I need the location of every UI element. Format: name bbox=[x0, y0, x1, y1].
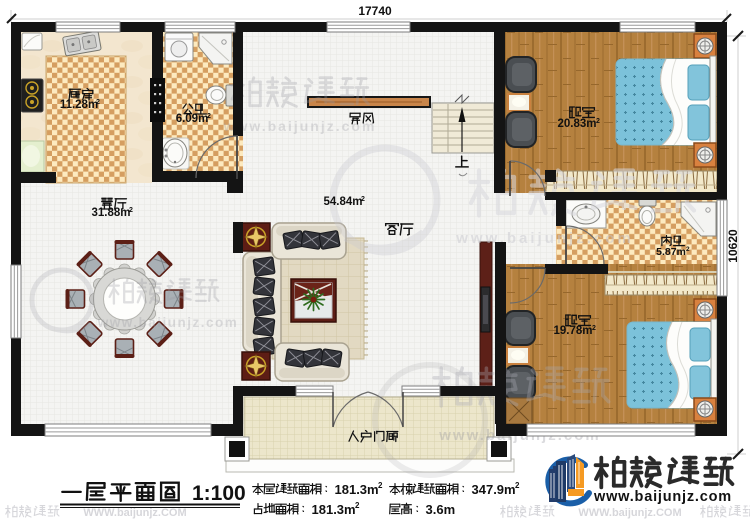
svg-text:2: 2 bbox=[207, 113, 211, 120]
svg-text:20.83m: 20.83m bbox=[557, 118, 596, 130]
svg-text:6.09m: 6.09m bbox=[176, 113, 209, 125]
svg-text:3.6m: 3.6m bbox=[426, 502, 456, 517]
svg-text:WWW.baijunjz.COM: WWW.baijunjz.COM bbox=[578, 507, 681, 519]
svg-text:www.baijunjz.com: www.baijunjz.com bbox=[593, 489, 732, 505]
svg-text:2: 2 bbox=[129, 207, 133, 214]
svg-text:2: 2 bbox=[355, 501, 360, 510]
svg-text:17740: 17740 bbox=[358, 4, 392, 18]
svg-text:2: 2 bbox=[515, 481, 520, 490]
svg-text:11.28m: 11.28m bbox=[60, 99, 98, 111]
svg-text:2: 2 bbox=[361, 196, 365, 203]
svg-text:2: 2 bbox=[96, 99, 100, 106]
svg-text:2: 2 bbox=[592, 325, 596, 332]
svg-text:2: 2 bbox=[378, 481, 383, 490]
svg-text:www.baijunjz.com: www.baijunjz.com bbox=[97, 315, 239, 330]
svg-text:54.84m: 54.84m bbox=[323, 196, 362, 208]
svg-text:www.baijunjz.com: www.baijunjz.com bbox=[455, 230, 633, 247]
svg-text:WWW.baijunjz.COM: WWW.baijunjz.COM bbox=[83, 507, 186, 519]
svg-text:19.78m: 19.78m bbox=[553, 325, 592, 337]
svg-text:10620: 10620 bbox=[726, 229, 740, 263]
svg-text:31.88m: 31.88m bbox=[91, 207, 130, 219]
svg-text:1:100: 1:100 bbox=[192, 482, 246, 505]
svg-text:5.87m: 5.87m bbox=[656, 246, 686, 258]
svg-text:2: 2 bbox=[686, 246, 690, 253]
svg-text:181.3m: 181.3m bbox=[335, 482, 379, 497]
svg-text:2: 2 bbox=[596, 118, 600, 125]
svg-text:347.9m: 347.9m bbox=[472, 482, 516, 497]
svg-text:181.3m: 181.3m bbox=[312, 502, 356, 517]
